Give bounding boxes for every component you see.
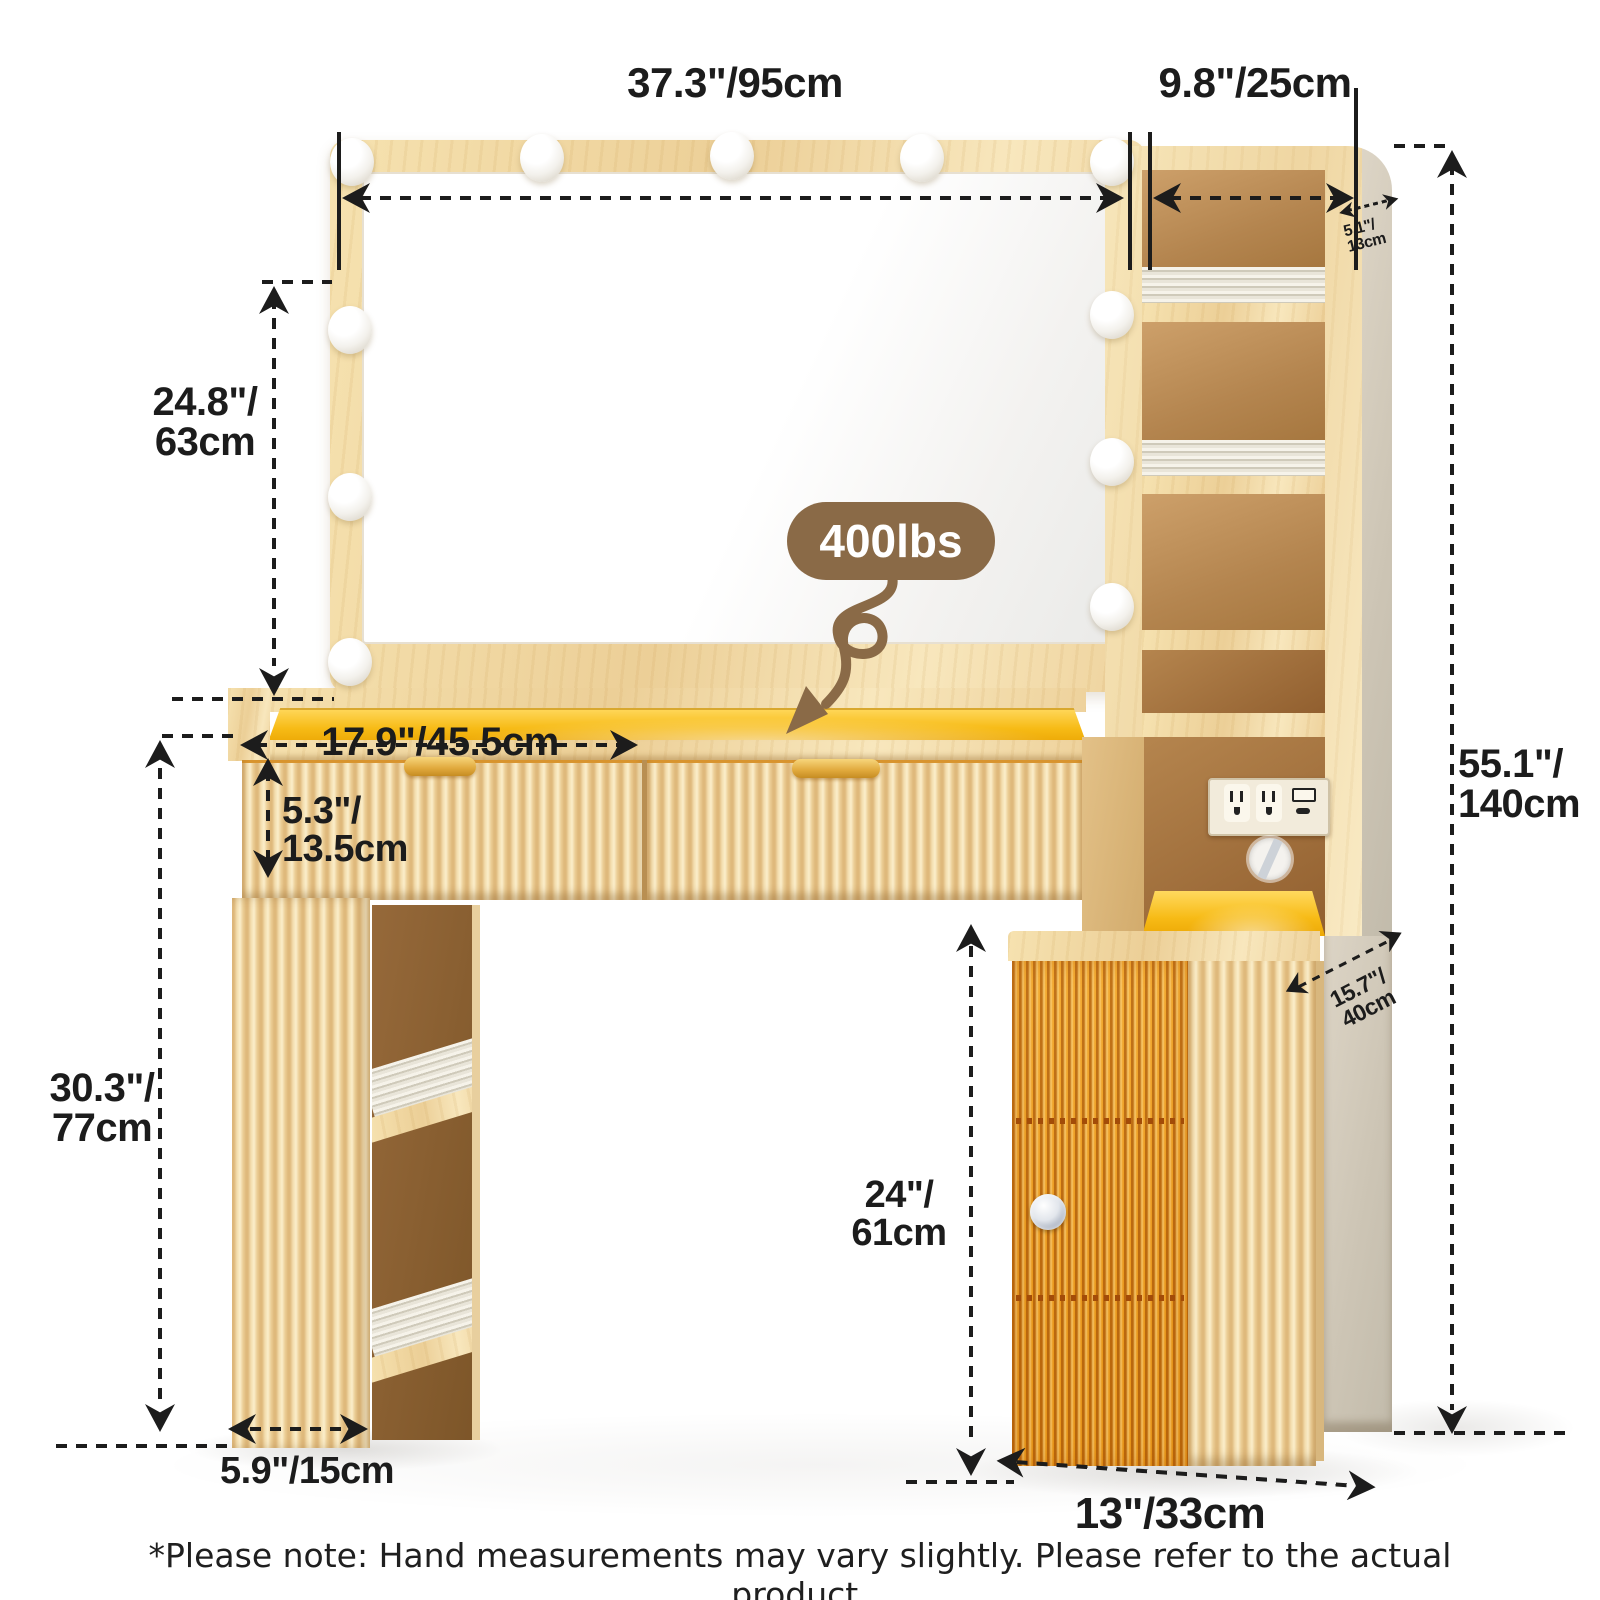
usb-c-port: [1296, 808, 1310, 814]
dim-mirror-height-label: 24.8"/ 63cm: [140, 382, 270, 462]
mirror-bulb: [1090, 438, 1134, 486]
dim-line: [360, 196, 1108, 200]
product-dimension-diagram: 400lbs 37.3"/95cm 9.8"/25cm 24.8"/ 63cm: [0, 0, 1600, 1600]
door-dotted-row: [1016, 1118, 1184, 1124]
dim-line: [272, 298, 276, 666]
dim-tick-line: [1394, 144, 1450, 148]
shelf-board: [1142, 713, 1325, 737]
mirror-glass: [362, 172, 1113, 644]
mirror-bulb: [1090, 583, 1134, 631]
footer-note: *Please note: Hand measurements may vary…: [100, 1536, 1500, 1600]
shelf-rail: [1142, 267, 1325, 303]
power-outlet-panel: [1208, 778, 1330, 836]
shelf-opening: [1142, 322, 1325, 440]
shelf-rail: [1142, 440, 1325, 476]
shelf-opening: [1142, 650, 1325, 713]
leg-shelf-column: [372, 905, 480, 1440]
squiggle-arrow-icon: [770, 574, 950, 744]
mirror-bulb: [328, 638, 372, 686]
nook-led-shelf: [1142, 891, 1325, 936]
shelf-opening: [1142, 170, 1325, 267]
shelf-board: [1142, 476, 1325, 494]
dim-top-shelf-width-label: 9.8"/25cm: [1140, 62, 1370, 104]
dim-line: [266, 770, 270, 866]
leg-shelf-edge: [472, 905, 480, 1440]
usb-a-port: [1292, 788, 1316, 802]
dim-line: [250, 1427, 350, 1431]
capacity-badge: 400lbs: [787, 502, 995, 580]
cable-hole: [1249, 838, 1291, 880]
dim-mirror-width-label: 37.3"/95cm: [510, 62, 960, 104]
arrow-left-icon: [1337, 202, 1355, 221]
dim-tick-line: [262, 280, 332, 284]
dim-cabinet-depth-label: 15.7"/ 40cm: [1308, 955, 1418, 1041]
dim-tick: [1148, 132, 1152, 270]
shelf-board: [1142, 630, 1325, 650]
mirror-bulb: [1090, 291, 1134, 339]
dim-tick-line: [162, 734, 234, 738]
dim-line: [1170, 196, 1338, 200]
cabinet-top: [1008, 931, 1320, 961]
dim-tick: [1128, 132, 1132, 270]
dim-line: [1450, 164, 1454, 1410]
mirror-bulb: [900, 134, 944, 182]
dim-line: [1347, 199, 1390, 213]
dim-top-shelf-depth-label: 5.1"/ 13cm: [1342, 210, 1410, 256]
nook-side-wall: [1082, 737, 1144, 935]
dim-tick-line: [172, 697, 334, 701]
dim-drawer-width-label: 17.9"/45.5cm: [290, 722, 590, 762]
dim-cabinet-door-height-label: 24"/ 61cm: [840, 1176, 958, 1252]
mirror-bulb: [520, 134, 564, 182]
dim-overall-height-label: 55.1"/ 140cm: [1458, 744, 1598, 824]
ac-outlet: [1256, 784, 1282, 822]
dim-tick-line: [906, 1480, 1014, 1484]
ac-outlet: [1224, 784, 1250, 822]
dim-drawer-height-label: 5.3"/ 13.5cm: [282, 792, 422, 868]
shelf-opening: [1142, 494, 1325, 630]
cabinet-door-knob: [1030, 1194, 1066, 1230]
mirror-bulb: [710, 132, 754, 180]
door-dotted-row: [1016, 1295, 1184, 1301]
shelf-board: [1142, 303, 1325, 322]
dim-line: [969, 946, 973, 1446]
dim-tick-line: [1394, 1431, 1566, 1435]
mirror-bulb: [328, 306, 372, 354]
mirror-bulb: [328, 473, 372, 521]
dim-cabinet-width-label: 13"/33cm: [1060, 1492, 1280, 1536]
dim-leg-depth-label: 5.9"/15cm: [212, 1452, 402, 1490]
desk-leg-left: [232, 898, 370, 1448]
dim-desk-height-label: 30.3"/ 77cm: [38, 1068, 166, 1148]
capacity-badge-label: 400lbs: [819, 514, 962, 568]
dim-tick-line: [56, 1444, 234, 1448]
dim-tick: [337, 132, 341, 270]
cabinet-front-fluted: [1188, 961, 1316, 1466]
drawer-handle: [792, 759, 880, 778]
drawer-right: [647, 760, 1082, 900]
